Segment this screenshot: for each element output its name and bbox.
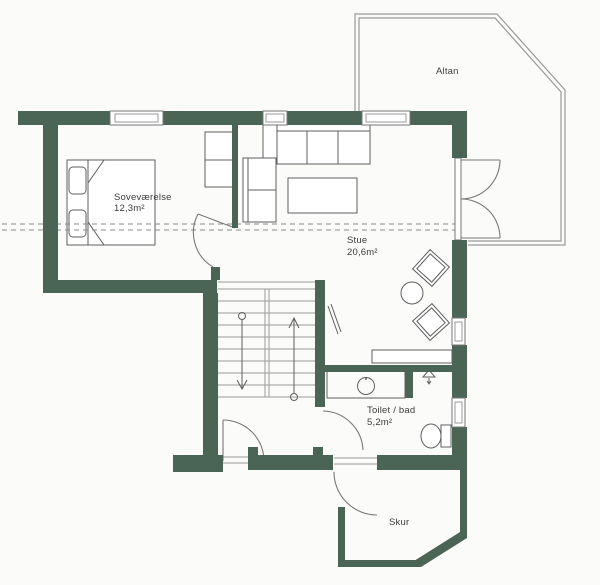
shower-drain-icon: [423, 370, 435, 384]
sofa-small: [243, 158, 276, 222]
staircase: [218, 282, 315, 401]
toilet-fixture: [421, 424, 451, 448]
coffee-table: [288, 178, 357, 213]
sofa-large: [263, 120, 370, 164]
bedroom-door: [193, 214, 235, 267]
stair-up-arrow: [289, 318, 299, 401]
room-label-altan: Altan: [436, 66, 459, 77]
bathroom-vanity: [327, 372, 405, 398]
wardrobe: [205, 132, 233, 187]
sideboard: [372, 350, 452, 363]
armchair-1: [413, 250, 450, 287]
living-window-large: [362, 111, 410, 125]
floor-plan-drawing: Altan Soveværelse 12,3m² Stue 20,6m² Toi…: [0, 0, 600, 585]
bathroom-door: [323, 411, 363, 450]
living-window-small: [263, 111, 287, 125]
balcony-french-door: [455, 158, 500, 240]
east-window-living: [452, 318, 465, 345]
shed-door: [334, 458, 377, 515]
round-table: [401, 282, 423, 304]
floor-plan: Altan Soveværelse 12,3m² Stue 20,6m² Toi…: [0, 0, 600, 585]
room-label-living: Stue: [347, 235, 367, 246]
room-area-bath: 5,2m²: [367, 417, 392, 428]
radiator: [328, 304, 341, 334]
east-window-bath: [452, 398, 465, 427]
armchair-2: [413, 304, 450, 341]
stair-down-arrow: [237, 313, 247, 390]
bedroom-window: [110, 111, 163, 125]
room-area-living: 20,6m²: [347, 247, 378, 258]
room-area-bedroom: 12,3m²: [114, 203, 145, 214]
room-label-bedroom: Soveværelse: [114, 192, 172, 203]
sink-icon: [358, 378, 375, 395]
room-label-bath: Toilet / bad: [367, 405, 415, 416]
room-label-shed: Skur: [389, 517, 409, 528]
